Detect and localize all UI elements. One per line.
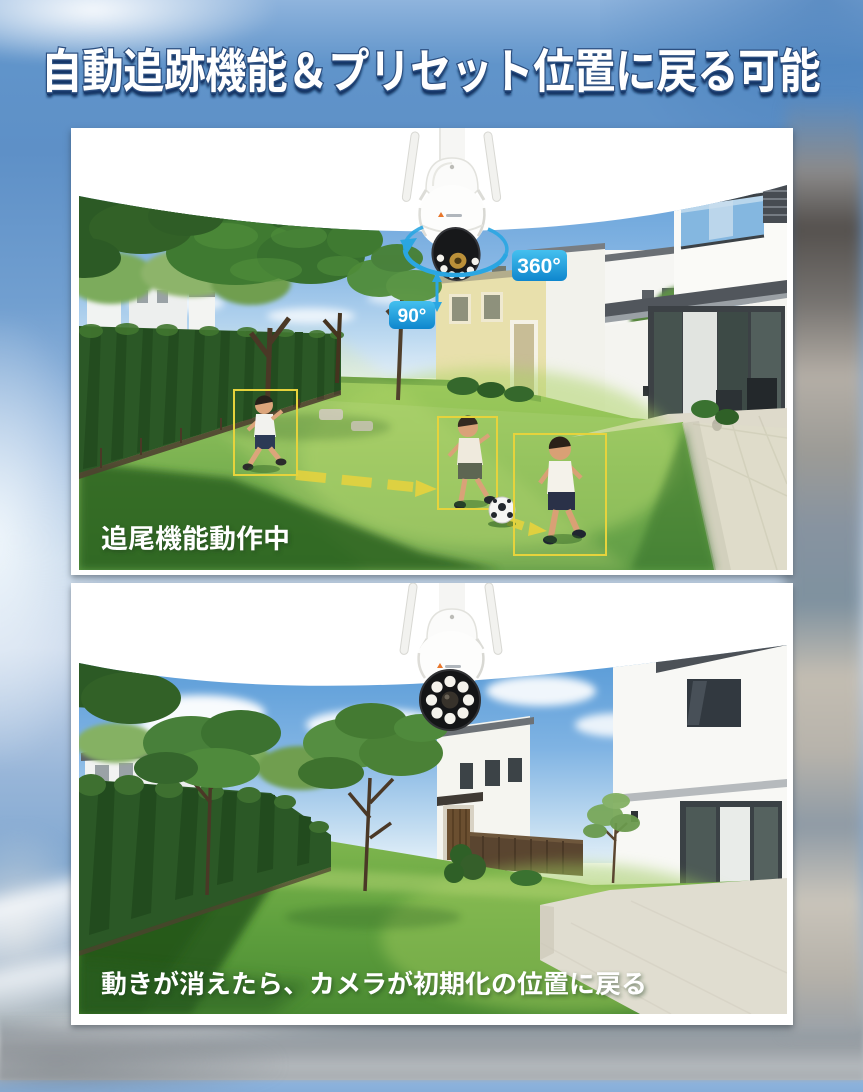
svg-text:90°: 90°: [398, 306, 427, 327]
svg-text:360°: 360°: [517, 255, 560, 278]
